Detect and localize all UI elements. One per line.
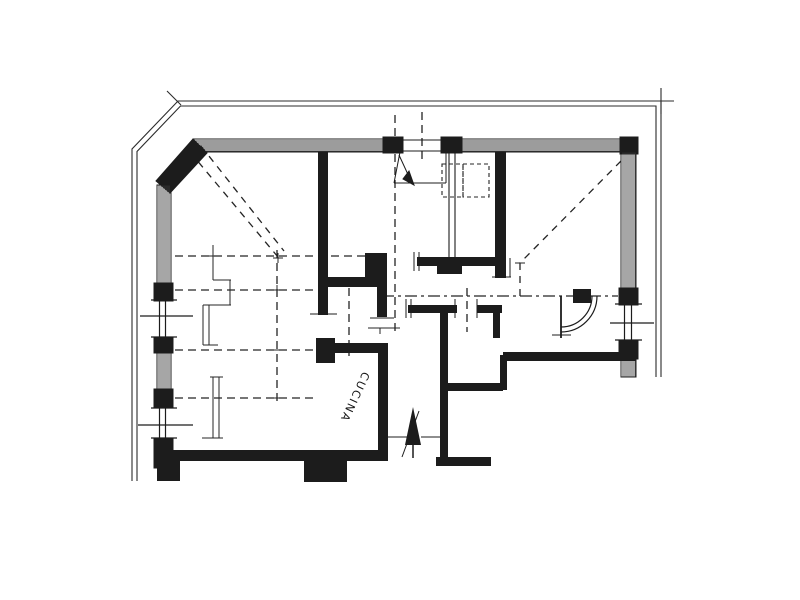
kitchen-label: CUCINA: [337, 370, 372, 425]
floor-plan-page: CUCINA: [0, 0, 800, 600]
floor-plan-drawing: CUCINA: [0, 0, 800, 600]
entrance-arrow-icon: [402, 407, 421, 458]
closet-partition: [449, 152, 455, 262]
interior-walls: [157, 152, 636, 482]
window-openings: [138, 300, 654, 438]
exterior-walls: [154, 137, 638, 468]
